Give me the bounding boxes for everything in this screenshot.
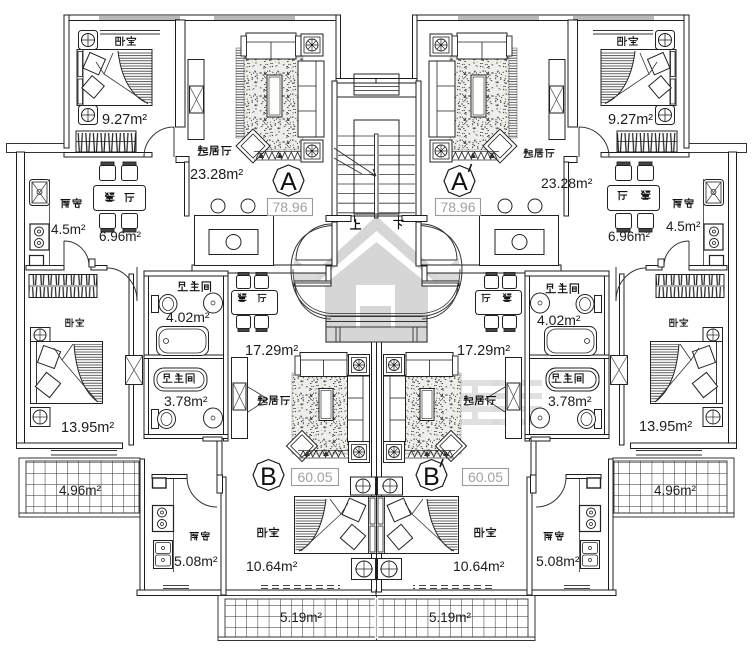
svg-text:A: A — [280, 168, 297, 196]
svg-text:10.64m²: 10.64m² — [453, 558, 505, 574]
svg-text:78.96: 78.96 — [272, 199, 307, 215]
svg-text:17.29m²: 17.29m² — [457, 343, 510, 359]
svg-text:13.95m²: 13.95m² — [61, 420, 114, 436]
svg-text:6.96m²: 6.96m² — [608, 229, 651, 244]
svg-text:4.5m²: 4.5m² — [51, 222, 86, 237]
svg-text:4.02m²: 4.02m² — [537, 312, 581, 328]
svg-text:13.95m²: 13.95m² — [639, 419, 692, 435]
svg-text:A: A — [451, 168, 468, 196]
svg-text:78.96: 78.96 — [440, 199, 475, 215]
svg-text:5.19m²: 5.19m² — [429, 610, 472, 625]
svg-text:17.29m²: 17.29m² — [245, 343, 298, 359]
svg-text:10.64m²: 10.64m² — [246, 558, 298, 574]
svg-text:5.08m²: 5.08m² — [174, 553, 218, 569]
svg-text:9.27m²: 9.27m² — [608, 112, 653, 128]
svg-text:9.27m²: 9.27m² — [102, 112, 147, 128]
svg-text:60.05: 60.05 — [468, 469, 503, 485]
svg-text:6.96m²: 6.96m² — [99, 229, 142, 244]
svg-text:60.05: 60.05 — [297, 469, 332, 485]
svg-text:4.5m²: 4.5m² — [666, 219, 701, 234]
svg-text:B: B — [260, 463, 277, 491]
svg-text:5.19m²: 5.19m² — [280, 610, 323, 625]
svg-text:B: B — [423, 463, 440, 491]
svg-text:4.96m²: 4.96m² — [654, 483, 697, 498]
svg-text:23.28m²: 23.28m² — [541, 175, 593, 191]
svg-text:3.78m²: 3.78m² — [548, 393, 592, 409]
svg-text:23.28m²: 23.28m² — [190, 167, 243, 183]
svg-text:4.96m²: 4.96m² — [59, 483, 102, 498]
svg-text:5.08m²: 5.08m² — [536, 553, 580, 569]
svg-text:3.78m²: 3.78m² — [164, 393, 208, 409]
svg-text:4.02m²: 4.02m² — [166, 309, 210, 325]
